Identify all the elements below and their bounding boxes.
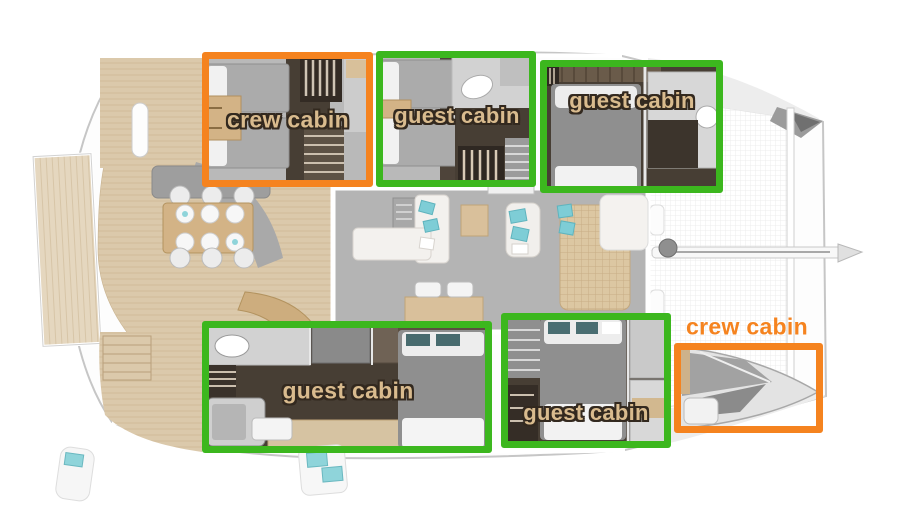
crew-cabin-stbd-bow-label: crew cabin (686, 316, 808, 339)
crew-cabin-stbd-bow-box (674, 343, 823, 433)
guest-cabin-port-fwd-box (540, 60, 723, 193)
guest-cabin-stbd-fwd-label: guest cabin (523, 402, 649, 424)
guest-cabin-port-fwd-label: guest cabin (569, 90, 695, 112)
guest-cabin-port-mid-label: guest cabin (394, 105, 520, 127)
annotation-layer: crew cabinguest cabinguest cabinguest ca… (0, 0, 900, 506)
crew-cabin-port-aft-label: crew cabin (227, 109, 349, 132)
guest-cabin-stbd-fwd-box (501, 313, 671, 448)
yacht-deck-plan-screenshot: crew cabinguest cabinguest cabinguest ca… (0, 0, 900, 506)
guest-cabin-stbd-aft-label: guest cabin (282, 380, 413, 403)
